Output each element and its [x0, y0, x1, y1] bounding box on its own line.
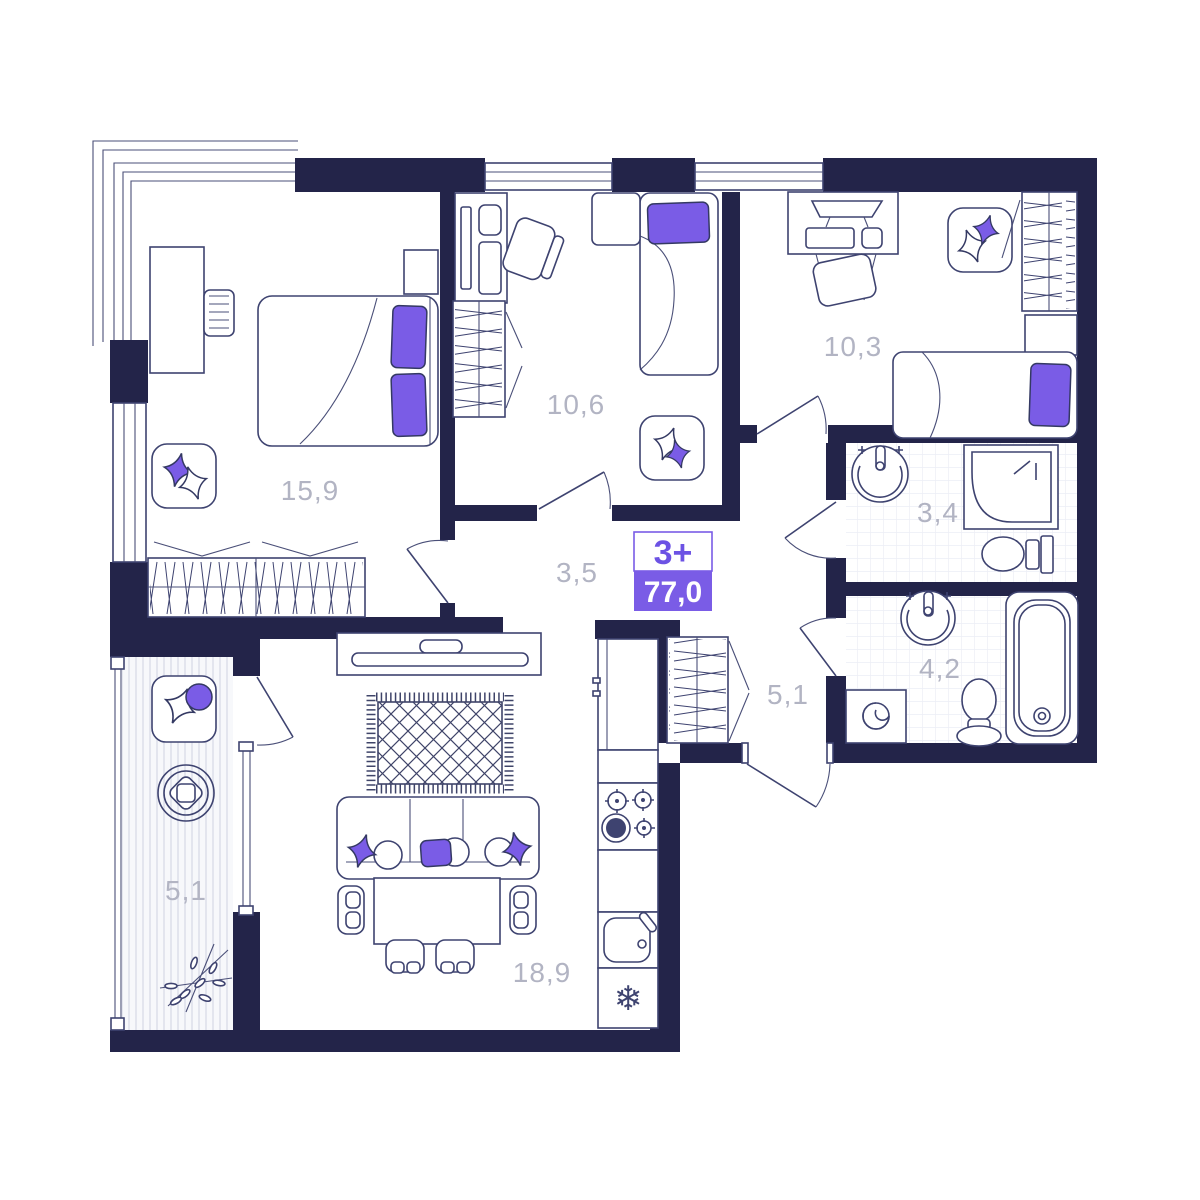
badge-rooms-label: 3+ [654, 534, 693, 572]
wall-segment [595, 620, 680, 639]
shower-room-area-label: 3,4 [917, 497, 959, 528]
corridor: 3,5 [556, 557, 598, 588]
child-room-2-area-label: 10,3 [824, 331, 883, 362]
dining-chair [386, 940, 424, 973]
bed-pillow [1029, 363, 1071, 426]
pouf [948, 208, 1012, 272]
kitchen-living-area-label: 18,9 [513, 957, 572, 988]
pouf [640, 416, 704, 480]
bedroom-door [407, 540, 448, 603]
computer-desk [788, 192, 898, 308]
wall-segment [612, 505, 740, 521]
desk-chair [812, 252, 878, 307]
wardrobe [453, 301, 522, 417]
bathroom-door [800, 618, 836, 676]
child-room-1-door [539, 472, 610, 509]
window-top-1 [485, 163, 612, 190]
hallway-furniture: 5,1 [667, 637, 809, 743]
wall-segment [722, 192, 740, 521]
window-left [113, 403, 146, 562]
sofa [337, 797, 539, 879]
plan-badge: 3+ 77,0 [634, 532, 712, 611]
badge-area-value: 77,0 [644, 576, 702, 609]
wall-segment [233, 912, 260, 1032]
kitchen-counter [598, 750, 658, 783]
wall-segment [823, 158, 1090, 192]
corridor-area-label: 3,5 [556, 557, 598, 588]
wardrobe [148, 542, 365, 617]
kitchen-units: ❄ [593, 639, 658, 1028]
hallway-area-label: 5,1 [767, 679, 809, 710]
nightstand [1025, 315, 1077, 355]
bedroom-area-label: 15,9 [281, 475, 340, 506]
sink [901, 591, 955, 645]
desk [455, 193, 507, 303]
wall-segment [110, 340, 148, 403]
bed-pillow [647, 202, 709, 244]
wall-segment [233, 639, 260, 676]
kitchen-living-furniture: ❄ 18,9 [337, 633, 658, 1028]
floorplan-svg: 15,9 [0, 0, 1200, 1200]
wall-segment [740, 425, 757, 443]
single-bed [640, 193, 718, 375]
child-room-2-door [757, 396, 826, 434]
wall-segment [295, 158, 485, 192]
shower-cabin [964, 445, 1058, 529]
wall-segment [1077, 158, 1097, 763]
wardrobe [1002, 192, 1077, 311]
wall-segment [826, 558, 846, 618]
entrance-door [742, 743, 833, 807]
kitchen-counter [598, 850, 658, 912]
wall-segment [826, 676, 846, 743]
dining-chair [436, 940, 474, 973]
fridge [593, 639, 658, 750]
bathtub [1006, 592, 1078, 744]
nightstand [404, 250, 438, 294]
dining-chair [338, 886, 364, 934]
child-room-1-area-label: 10,6 [547, 389, 606, 420]
dining-chair [510, 886, 536, 934]
pouf [152, 444, 216, 508]
wall-segment [612, 158, 695, 192]
child-room-1-furniture: 10,6 [453, 193, 718, 480]
wall-segment [830, 743, 1097, 763]
balcony-inner-window [239, 742, 253, 915]
child-room-2-furniture: 10,3 [788, 192, 1077, 438]
dining-table [338, 878, 536, 973]
wall-segment [110, 562, 148, 620]
wall-segment [110, 1030, 680, 1052]
wall-segment [440, 505, 537, 521]
nightstand [592, 193, 640, 245]
shower-room-door [785, 502, 836, 558]
single-bed [893, 352, 1077, 438]
freezer: ❄ [598, 968, 658, 1028]
double-bed [258, 296, 438, 446]
bathroom-area-label: 4,2 [919, 653, 961, 684]
bedroom-furniture: 15,9 [148, 247, 438, 617]
freezer-snowflake-icon: ❄ [614, 979, 643, 1019]
floorplan-canvas: 15,9 [0, 0, 1200, 1200]
stove [598, 783, 658, 850]
washing-machine [846, 690, 906, 743]
balcony-area-label: 5,1 [165, 875, 207, 906]
bench [152, 676, 216, 742]
balcony-door [257, 677, 293, 745]
kitchen-sink [598, 911, 658, 968]
tv-console [337, 633, 541, 675]
dresser [150, 247, 234, 373]
desk-chair [501, 216, 567, 286]
bench-pillow [186, 684, 212, 710]
wardrobe [667, 637, 749, 743]
sink [852, 446, 908, 502]
window-top-2 [695, 163, 823, 190]
wall-segment [680, 743, 745, 763]
wall-segment [826, 443, 846, 500]
rug [371, 695, 509, 791]
